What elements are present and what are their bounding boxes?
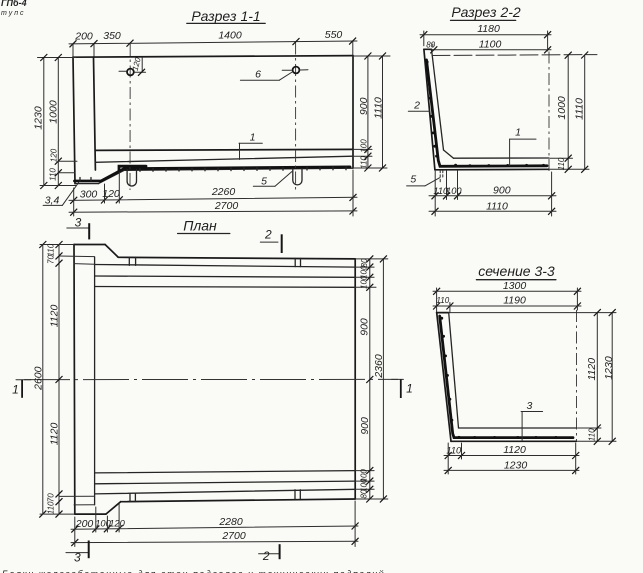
svg-text:110: 110 <box>47 243 56 256</box>
svg-text:300: 300 <box>80 189 98 201</box>
svg-text:110: 110 <box>588 428 597 441</box>
svg-text:1110: 1110 <box>373 97 385 119</box>
svg-text:1: 1 <box>515 126 521 138</box>
svg-text:1: 1 <box>406 381 413 395</box>
svg-text:2700: 2700 <box>214 200 239 212</box>
svg-text:3,4: 3,4 <box>45 195 60 207</box>
svg-text:2: 2 <box>413 99 420 111</box>
svg-text:1100: 1100 <box>479 39 502 51</box>
svg-text:1190: 1190 <box>503 295 526 307</box>
svg-text:110: 110 <box>360 156 369 169</box>
svg-text:2280: 2280 <box>218 516 243 528</box>
svg-text:200: 200 <box>74 30 93 42</box>
svg-text:1110: 1110 <box>486 200 508 212</box>
svg-text:350: 350 <box>103 30 121 42</box>
svg-text:3: 3 <box>526 400 532 412</box>
svg-text:Разрез 1-1: Разрез 1-1 <box>191 8 260 24</box>
svg-text:2: 2 <box>264 228 272 242</box>
svg-text:70: 70 <box>47 493 56 502</box>
svg-text:1400: 1400 <box>218 30 242 42</box>
svg-text:100: 100 <box>359 275 368 289</box>
svg-text:100: 100 <box>446 186 462 196</box>
svg-text:ГПб-4: ГПб-4 <box>1 0 27 8</box>
svg-text:900: 900 <box>358 97 370 115</box>
svg-text:1120: 1120 <box>586 358 598 381</box>
svg-text:1120: 1120 <box>49 305 61 328</box>
svg-text:80: 80 <box>359 489 368 498</box>
svg-text:70: 70 <box>47 255 56 264</box>
svg-text:110: 110 <box>446 446 462 456</box>
svg-text:1230: 1230 <box>504 460 528 472</box>
svg-text:200: 200 <box>75 518 94 530</box>
svg-text:2360: 2360 <box>373 354 385 379</box>
svg-text:1120: 1120 <box>49 423 61 446</box>
svg-text:1230: 1230 <box>603 356 615 380</box>
svg-text:1000: 1000 <box>47 100 59 124</box>
svg-text:900: 900 <box>493 184 511 196</box>
svg-text:120: 120 <box>102 188 120 200</box>
svg-text:120: 120 <box>49 148 58 162</box>
svg-text:План: План <box>183 217 217 233</box>
svg-text:т у п с: т у п с <box>1 10 24 17</box>
svg-text:1300: 1300 <box>503 280 527 292</box>
svg-text:3: 3 <box>75 215 82 229</box>
svg-text:100: 100 <box>360 139 369 153</box>
svg-text:1230: 1230 <box>32 106 44 130</box>
svg-text:110: 110 <box>436 296 449 305</box>
svg-text:80: 80 <box>426 41 435 50</box>
svg-text:900: 900 <box>359 417 371 435</box>
svg-text:120: 120 <box>109 519 125 529</box>
svg-text:120: 120 <box>131 56 143 72</box>
svg-text:2: 2 <box>262 549 270 563</box>
svg-text:110: 110 <box>47 501 56 514</box>
svg-text:Разрез 2-2: Разрез 2-2 <box>451 4 521 20</box>
svg-text:3: 3 <box>74 550 81 564</box>
svg-text:550: 550 <box>325 29 343 41</box>
svg-text:1: 1 <box>250 131 256 143</box>
svg-text:Балки железобетонные для стен: Балки железобетонные для стен подвалов и… <box>2 569 385 573</box>
svg-text:900: 900 <box>359 318 371 336</box>
svg-text:сечение 3-3: сечение 3-3 <box>478 263 555 279</box>
svg-text:5: 5 <box>410 173 416 185</box>
svg-text:110: 110 <box>557 157 566 170</box>
svg-text:2260: 2260 <box>211 186 236 198</box>
svg-text:2700: 2700 <box>221 530 246 542</box>
svg-text:1120: 1120 <box>503 444 526 456</box>
svg-text:1110: 1110 <box>574 98 586 120</box>
svg-text:5: 5 <box>261 175 267 187</box>
svg-text:2600: 2600 <box>32 366 44 391</box>
svg-text:1: 1 <box>12 383 19 397</box>
svg-text:1000: 1000 <box>556 96 568 120</box>
svg-text:1180: 1180 <box>477 23 500 35</box>
svg-text:110: 110 <box>48 168 57 181</box>
svg-text:6: 6 <box>255 69 261 81</box>
